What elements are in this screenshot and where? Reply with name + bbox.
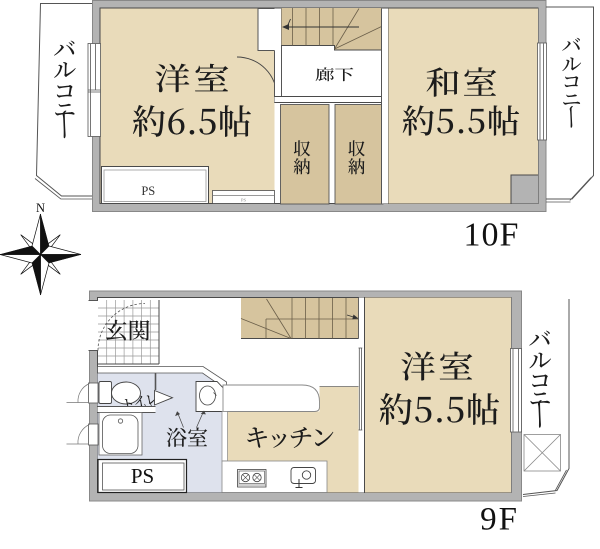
svg-text:10F: 10F — [464, 217, 520, 254]
svg-text:9F: 9F — [480, 502, 519, 538]
svg-text:PS: PS — [141, 184, 155, 198]
svg-text:PS: PS — [241, 198, 247, 203]
svg-text:N: N — [36, 201, 45, 215]
svg-text:PS: PS — [131, 464, 154, 488]
